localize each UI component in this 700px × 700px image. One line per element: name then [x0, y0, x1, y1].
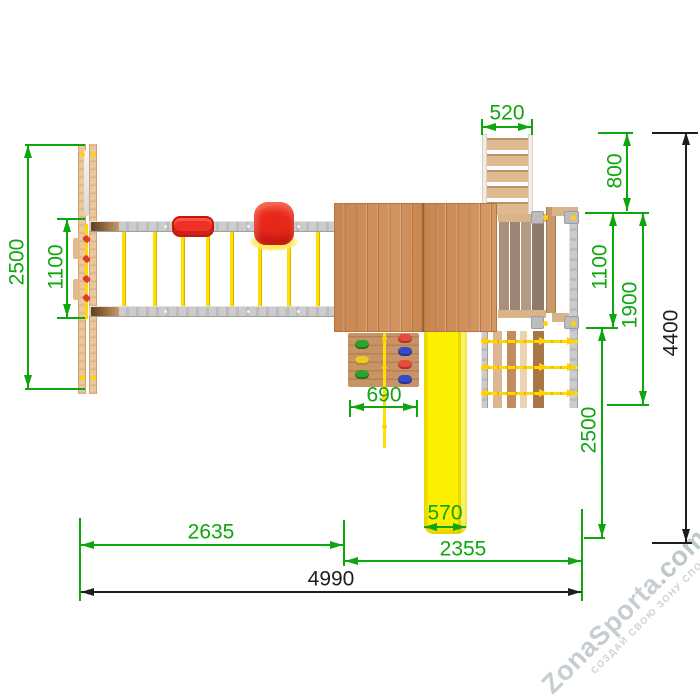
- dim-arrow-down: [63, 304, 71, 317]
- climb-hold-blue: [398, 347, 412, 356]
- dim-arrow-right: [403, 403, 416, 411]
- rope-knot: [382, 365, 387, 370]
- dim-arrow-up: [682, 132, 690, 145]
- dim-arrow-down: [639, 391, 647, 404]
- dim-arrow-up: [24, 145, 32, 158]
- monkey-bar-rung: [316, 228, 320, 310]
- beam-bolt: [247, 225, 250, 228]
- deck-plank: [499, 222, 509, 310]
- climb-hold-green: [355, 340, 369, 349]
- ladder-rail-right: [528, 134, 533, 220]
- rope-knot: [483, 337, 496, 345]
- dim-label-1100-right: 1100: [590, 244, 611, 289]
- swing-frame-post-right: [89, 144, 97, 394]
- extension-line: [652, 542, 692, 544]
- ladder-rung: [487, 186, 528, 198]
- dim-arrow-down: [609, 314, 617, 327]
- dim-label-2635: 2635: [188, 522, 235, 543]
- dim-label-690: 690: [366, 385, 401, 406]
- rope-knot: [382, 424, 387, 429]
- beam-bolt: [164, 225, 167, 228]
- ladder-rung: [487, 154, 528, 166]
- dim-label-1900: 1900: [620, 282, 641, 329]
- fastener-dot: [571, 215, 576, 220]
- rope-knot: [539, 363, 552, 371]
- dimension-line: [81, 544, 343, 546]
- monkey-bar-rung: [230, 228, 234, 310]
- dim-arrow-up: [609, 213, 617, 226]
- dim-arrow-up: [598, 328, 606, 341]
- dim-arrow-down: [598, 524, 606, 537]
- extension-line: [652, 132, 698, 134]
- dim-label-2500-right: 2500: [579, 407, 600, 454]
- ladder-rung: [487, 138, 528, 150]
- swing-frame-metal-leg: [84, 150, 89, 216]
- extension-line: [57, 317, 85, 319]
- watermark-brand-name: ZonaSporta: [536, 569, 667, 700]
- fastener-dot: [91, 375, 96, 380]
- fastener-dot: [543, 321, 548, 326]
- tower-roof: [334, 203, 497, 332]
- monkey-bar-rung: [181, 228, 185, 310]
- dim-arrow-left: [351, 403, 364, 411]
- rope-knot: [539, 337, 552, 345]
- dim-label-4990: 4990: [308, 569, 355, 590]
- beam-bolt: [247, 310, 250, 313]
- dim-arrow-left: [81, 541, 94, 549]
- fastener-dot: [80, 375, 85, 380]
- post-climb-tab: [73, 238, 80, 259]
- fastener-dot: [571, 321, 576, 326]
- dim-arrow-left: [345, 557, 358, 565]
- dimension-line: [685, 133, 687, 542]
- rope-knot: [567, 363, 580, 371]
- deck-plank: [521, 222, 531, 310]
- monkey-bar-rung: [153, 228, 157, 310]
- roof-ridge-line: [422, 203, 424, 332]
- extension-line: [25, 388, 85, 390]
- fastener-dot: [91, 152, 96, 157]
- extension-line: [57, 218, 85, 220]
- dim-arrow-right: [568, 557, 581, 565]
- extension-line: [581, 509, 583, 601]
- monkey-bar-rung: [122, 228, 126, 310]
- ladder-rung: [487, 170, 528, 182]
- beam-wood-bracket: [91, 222, 119, 231]
- playground-plan-drawing: 2500 1100 520 800 1100 1900: [0, 0, 700, 700]
- climb-hold-red: [398, 360, 412, 369]
- dim-label-570: 570: [427, 503, 462, 524]
- beam-bolt: [297, 225, 300, 228]
- dim-arrow-down: [682, 529, 690, 542]
- extension-line: [584, 537, 605, 539]
- rope-knot: [483, 389, 496, 397]
- rope-knot: [483, 363, 496, 371]
- dim-arrow-down: [623, 198, 631, 211]
- dim-arrow-down: [24, 375, 32, 388]
- dim-arrow-right: [568, 588, 581, 596]
- beam-wood-bracket: [91, 307, 119, 316]
- beam-bolt: [164, 310, 167, 313]
- extension-line: [25, 144, 85, 146]
- dim-arrow-up: [639, 213, 647, 226]
- deck-edge-beam: [546, 207, 556, 313]
- extension-line: [607, 404, 649, 406]
- fastener-dot: [80, 152, 85, 157]
- deck-plank: [510, 222, 520, 310]
- dim-label-520: 520: [489, 103, 524, 124]
- dim-label-4400: 4400: [661, 310, 682, 357]
- swing-seat-bucket: [254, 202, 294, 245]
- deck-plank: [532, 222, 544, 310]
- beam-bolt: [297, 310, 300, 313]
- roof-plank-texture: [334, 203, 497, 332]
- dim-label-2355: 2355: [440, 539, 487, 560]
- rope-knot: [567, 337, 580, 345]
- deck-metal-rail: [569, 212, 578, 408]
- dim-label-1100-left: 1100: [46, 244, 67, 289]
- extension-tick: [416, 400, 418, 417]
- dim-arrow-up: [623, 133, 631, 146]
- climb-hold-red: [398, 334, 412, 343]
- rope-knot: [382, 336, 387, 341]
- dim-arrow-left: [81, 588, 94, 596]
- fastener-dot: [543, 215, 548, 220]
- dim-label-800: 800: [605, 153, 626, 188]
- climb-hold-yellow: [355, 356, 369, 365]
- rope-knot: [539, 389, 552, 397]
- dim-arrow-right: [330, 541, 343, 549]
- climb-hold-green: [355, 370, 369, 379]
- dim-label-2500-left: 2500: [7, 239, 28, 286]
- dimension-line: [601, 328, 603, 537]
- swing-seat-flat: [172, 216, 214, 237]
- dimension-line: [642, 214, 644, 404]
- dimension-line: [81, 591, 581, 593]
- post-climb-tab: [73, 279, 80, 300]
- monkey-bar-rung: [206, 228, 210, 310]
- dim-arrow-up: [63, 219, 71, 232]
- rope-knot: [567, 389, 580, 397]
- dimension-line: [612, 214, 614, 327]
